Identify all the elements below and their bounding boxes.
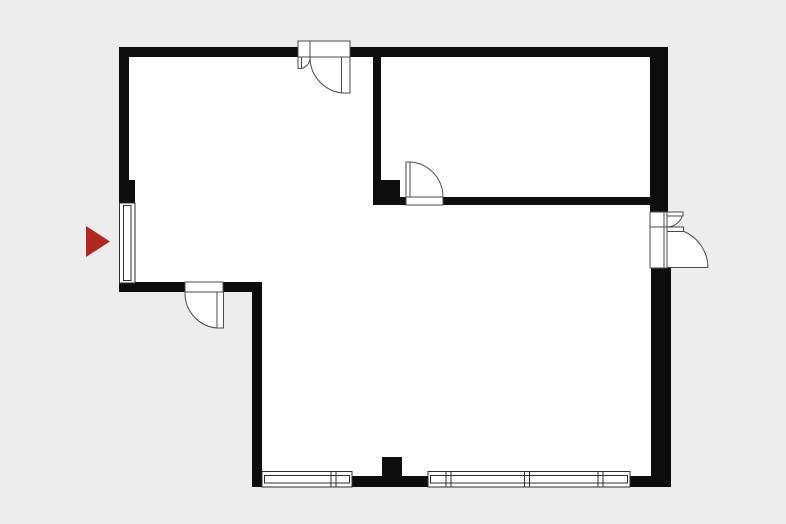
pier-interior [373, 180, 400, 197]
wall-east-lower [651, 268, 671, 487]
wall-west-lower [252, 282, 262, 487]
floor-plan [0, 0, 786, 524]
wall-north [119, 47, 668, 57]
wall-west-upper [119, 47, 129, 180]
building-interior [119, 47, 668, 487]
wall-east-upper [650, 47, 668, 212]
door-entrance-north-frame [298, 41, 350, 57]
door-leftroom-south-frame [185, 282, 223, 292]
pier-west [119, 180, 135, 203]
wall-interior-horiz-east [443, 197, 650, 205]
door-entrance-north-leaf-1 [342, 57, 351, 93]
door-interior-room-frame [406, 197, 443, 205]
wall-interior-horiz-west [373, 197, 407, 205]
entrance-arrow [86, 226, 110, 257]
door-entrance-north-leaf-2 [298, 57, 302, 69]
wall-interior-vertical [373, 57, 381, 197]
door-leftroom-south-leaf-1 [217, 292, 224, 328]
window-west [120, 203, 136, 283]
door-east-double-leaf-2 [667, 212, 683, 216]
window-south-1 [262, 472, 352, 488]
door-east-double-leaf-1 [667, 227, 684, 232]
pier-south [382, 457, 402, 476]
door-east-double-swing-arc-1 [667, 231, 708, 268]
door-leftroom-south-swing-arc-1 [185, 292, 220, 328]
floor-plan-viewport [0, 0, 786, 524]
wall-south-middle [352, 476, 428, 487]
door-interior-room-leaf-1 [406, 162, 410, 197]
